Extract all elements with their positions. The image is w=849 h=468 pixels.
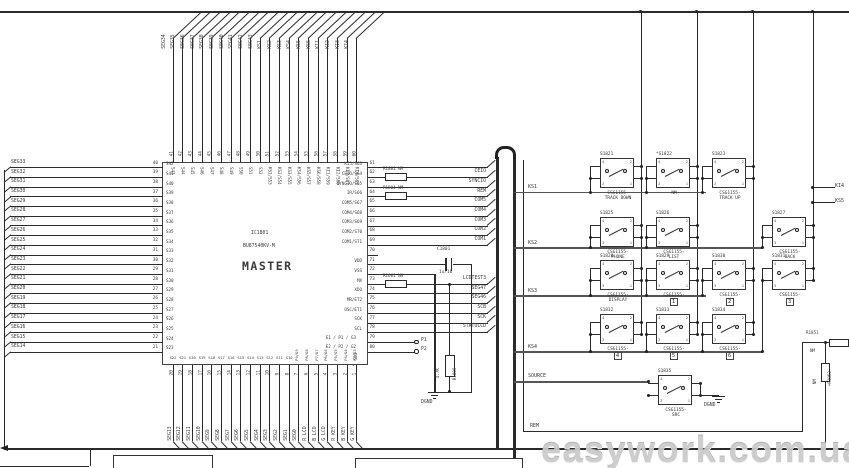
- pin-name: MR/ET2: [250, 298, 362, 302]
- pin-name: CEIO/S64: [250, 172, 362, 176]
- net-label: B LCD: [314, 426, 319, 440]
- pin-number: 49: [248, 151, 252, 156]
- junction-dot: [645, 191, 648, 194]
- resistor-value: NM: [813, 379, 817, 384]
- wire: [368, 293, 488, 294]
- resistor-body: [385, 192, 407, 200]
- switch-pin-number: 2: [630, 262, 632, 266]
- pin-number: 46: [218, 151, 222, 156]
- switch-arm-icon: [609, 324, 624, 332]
- switch-refdes: S1827: [772, 211, 785, 216]
- wire: [356, 38, 357, 163]
- pin-number: 3: [335, 373, 339, 376]
- pin-number: 72: [370, 268, 375, 272]
- net-label: SEG43: [250, 34, 255, 48]
- wire: [298, 38, 299, 163]
- switch-pin-number: 1: [686, 241, 688, 245]
- switch-pin-number: 1: [686, 338, 688, 342]
- net-label: SEG16: [11, 326, 25, 331]
- junction-dot: [640, 321, 643, 324]
- wire-diagonal: [487, 238, 496, 246]
- pin-number: 20: [170, 370, 174, 375]
- junction-dot: [701, 333, 704, 336]
- switch-pin-number: 4: [602, 262, 604, 266]
- pushbutton-switch: 4 2 3 1 S1831 CSG1155- 3: [772, 260, 806, 290]
- pin-name: COM2/S70: [250, 230, 362, 234]
- bus-entry: [3, 167, 11, 174]
- wire: [10, 313, 163, 314]
- pin-name: S27: [166, 308, 174, 312]
- wire: [10, 245, 163, 246]
- pin-number: 54: [296, 151, 300, 156]
- net-label: COM4: [406, 209, 486, 214]
- switch-contact-icon: [661, 271, 665, 275]
- ground-label: DGND: [421, 401, 433, 406]
- preset-key-icon: 4: [614, 352, 622, 360]
- pin-number: 28: [138, 278, 158, 282]
- net-label: SEG40: [221, 34, 226, 48]
- wire: [762, 268, 772, 269]
- switch-pin-number: 4: [602, 219, 604, 223]
- net-label: SEG46: [406, 296, 486, 301]
- pin-number: 4: [325, 373, 329, 376]
- wire: [182, 38, 183, 163]
- switch-pin-number: 4: [658, 219, 660, 223]
- watermark: easywork.com.ua: [541, 429, 849, 468]
- pin-alt-function: E2 / P2 / G2: [300, 345, 356, 349]
- pin-number: 66: [370, 210, 375, 214]
- wire: [813, 202, 835, 203]
- pin-name: S38: [166, 201, 174, 205]
- pin-name: S50: [238, 167, 242, 175]
- rail-net-label: SOURCE: [528, 374, 546, 379]
- wire: [368, 245, 488, 246]
- switch-pin-number: 2: [686, 219, 688, 223]
- switch-pin-number: 2: [630, 160, 632, 164]
- switch-refdes: S1834: [712, 308, 725, 313]
- wire: [802, 343, 803, 432]
- wire: [368, 352, 415, 353]
- pin-number: 13: [238, 370, 242, 375]
- pin-number: 51: [267, 151, 271, 156]
- pin-number: 78: [370, 326, 375, 330]
- switch-pin-number: 2: [686, 316, 688, 320]
- net-label: SEG32: [11, 171, 25, 176]
- wire-diagonal: [487, 325, 496, 333]
- switch-arm-icon: [781, 270, 796, 278]
- junction-dot: [640, 177, 643, 180]
- wire: [192, 38, 193, 163]
- rail-net-label: KS2: [528, 241, 537, 246]
- pin-number: 30: [138, 259, 158, 263]
- resistor-value: NM: [810, 349, 815, 353]
- switch-pin-number: 2: [686, 262, 688, 266]
- rail-wire: [514, 381, 648, 383]
- pin-number: 60: [354, 151, 358, 156]
- wire: [368, 177, 385, 178]
- wire: [240, 38, 241, 163]
- junction-dot: [645, 333, 648, 336]
- switch-pin-number: 2: [802, 219, 804, 223]
- pin-name: KI5/S63: [250, 162, 362, 166]
- net-label: KI3: [337, 40, 342, 49]
- pin-number: 38: [138, 181, 158, 185]
- pin-number: 67: [370, 220, 375, 224]
- wire: [368, 226, 488, 227]
- pin-number: 22: [138, 336, 158, 340]
- switch-pin-number: 3: [658, 284, 660, 288]
- switch-arm-icon: [721, 270, 736, 278]
- switch-contact-icon: [661, 325, 665, 329]
- preset-key-digit: 6: [728, 353, 731, 359]
- pin-name: S28: [166, 298, 174, 302]
- junction-dot: [696, 224, 699, 227]
- net-label: SEG10: [198, 426, 203, 440]
- junction-dot: [701, 191, 704, 194]
- pin-number: 56: [315, 151, 319, 156]
- rail-net-label: KS4: [528, 345, 537, 350]
- switch-arm-icon: [665, 324, 680, 332]
- switch-arm-icon: [609, 270, 624, 278]
- pin-name: S46: [200, 167, 204, 175]
- wire: [368, 196, 385, 197]
- wire: [289, 38, 290, 163]
- wire-diagonal: [487, 305, 496, 313]
- rail-net-label: REM: [530, 424, 539, 429]
- net-label: SEG36: [182, 34, 187, 48]
- pin-name: P6/G6: [325, 349, 329, 360]
- net-label: SEG22: [11, 268, 25, 273]
- pushbutton-switch: 4 2 3 1 *S1822 NM: [656, 158, 690, 188]
- switch-arm-icon: [609, 168, 624, 176]
- preset-key-icon: 5: [670, 352, 678, 360]
- net-label: SEG37: [192, 34, 197, 48]
- switch-pin-number: 1: [630, 182, 632, 186]
- switch-arm-icon: [665, 270, 680, 278]
- wire: [453, 264, 472, 265]
- switch-pin-number: 3: [602, 241, 604, 245]
- wire: [646, 322, 647, 351]
- pushbutton-switch: 4 2 3 1 S1835 CSG1155- SRC: [658, 375, 692, 405]
- net-label: SEG19: [11, 297, 25, 302]
- wire: [646, 268, 656, 269]
- junction-dot: [811, 186, 814, 189]
- switch-refdes: S1831: [772, 254, 785, 259]
- switch-pin-number: 4: [774, 262, 776, 266]
- pin-number: 44: [199, 151, 203, 156]
- switch-arm-icon: [609, 227, 624, 235]
- junction-dot: [761, 279, 764, 282]
- wire: [700, 383, 701, 395]
- wire-diagonal: [487, 286, 496, 294]
- switch-refdes: S1835: [658, 369, 671, 374]
- pin-number: 39: [138, 171, 158, 175]
- junction-dot: [640, 267, 643, 270]
- wire: [10, 255, 163, 256]
- switch-contact-icon: [717, 169, 721, 173]
- net-label: KS6: [308, 40, 313, 49]
- resistor-label: R1801 NM: [383, 167, 403, 171]
- net-label: SEG2: [275, 429, 280, 441]
- switch-contact-icon: [605, 271, 609, 275]
- pin-name: S33: [166, 249, 174, 253]
- net-label: SEG13: [169, 426, 174, 440]
- pin-name: S35: [166, 230, 174, 234]
- junction-dot: [640, 333, 643, 336]
- pin-name: SCL: [250, 327, 362, 331]
- rail-wire: [514, 247, 762, 249]
- pin-number: 79: [370, 336, 375, 340]
- resistor-label: R1601 NM: [383, 274, 403, 278]
- wire: [368, 313, 488, 314]
- pin-number: 57: [325, 151, 329, 156]
- switch-arm-icon: [665, 168, 680, 176]
- pin-number: 65: [370, 200, 375, 204]
- switch-pin-number: 4: [658, 262, 660, 266]
- net-label: SEG34: [163, 34, 168, 48]
- switch-pin-number: 4: [658, 316, 660, 320]
- switch-refdes: S1833: [656, 308, 669, 313]
- switch-function: DISPLAY: [591, 298, 645, 303]
- wire: [0, 466, 89, 467]
- junction-dot: [696, 267, 699, 270]
- pin-number: 69: [370, 239, 375, 243]
- pushbutton-switch: 4 2 3 1 S1832 CSG1155- 4: [600, 314, 634, 344]
- resistor-body: [385, 173, 407, 181]
- pin-name: S40: [166, 182, 174, 186]
- wire-diagonal: [487, 179, 496, 187]
- wire: [269, 38, 270, 163]
- switch-function: TRACK DOWN: [591, 196, 645, 201]
- switch-pin-number: 1: [688, 399, 690, 403]
- junction-dot: [645, 236, 648, 239]
- pin-number: 2: [344, 373, 348, 376]
- switch-pin-number: 1: [802, 241, 804, 245]
- junction-dot: [645, 279, 648, 282]
- wire-diagonal: [487, 160, 496, 168]
- preset-key-digit: 1: [672, 299, 675, 305]
- net-label: SEG8: [217, 429, 222, 441]
- junction-dot: [696, 279, 699, 282]
- net-label: R KEY: [333, 426, 338, 440]
- junction-dot: [696, 165, 699, 168]
- wire: [10, 284, 163, 285]
- switch-pin-number: 3: [774, 241, 776, 245]
- switch-pin-number: 1: [630, 284, 632, 288]
- wire: [0, 11, 849, 13]
- net-label: SEG18: [11, 306, 25, 311]
- wire: [211, 38, 212, 163]
- junction-dot: [696, 177, 699, 180]
- junction-dot: [589, 191, 592, 194]
- resistor-refdes: R1851: [806, 331, 819, 335]
- net-label: SEG35: [172, 34, 177, 48]
- net-label: B KEY: [343, 426, 348, 440]
- switch-pin-number: 1: [742, 284, 744, 288]
- wire: [646, 225, 656, 226]
- bus-arrow-icon: [0, 445, 8, 451]
- pin-name: SCK: [250, 317, 362, 321]
- pin-name: IR/S66: [250, 191, 362, 195]
- switch-pin-number: 3: [774, 284, 776, 288]
- pin-number: 14: [228, 370, 232, 375]
- pin-number: 76: [370, 307, 375, 311]
- pin-number: 48: [238, 151, 242, 156]
- wire: [700, 395, 719, 396]
- switch-pin-number: 2: [742, 262, 744, 266]
- switch-pin-number: 3: [658, 338, 660, 342]
- junction-dot: [645, 177, 648, 180]
- switch-refdes: S1821: [600, 152, 613, 157]
- pin-name: COM5/S67: [250, 201, 362, 205]
- pin-number: 77: [370, 317, 375, 321]
- test-point-label: P1: [421, 339, 427, 344]
- pin-number: 33: [138, 229, 158, 233]
- resistor-body: [829, 339, 849, 347]
- pin-name: XDO: [250, 288, 362, 292]
- pin-number: 71: [370, 259, 375, 263]
- switch-pin-number: 1: [686, 182, 688, 186]
- pin-number: 5: [315, 373, 319, 376]
- wire: [646, 322, 656, 323]
- net-label: KS3: [279, 40, 284, 49]
- pin-number: 55: [306, 151, 310, 156]
- wire: [590, 225, 600, 226]
- wire: [702, 322, 703, 351]
- net-label: SEG1: [285, 429, 290, 441]
- switch-pin-number: 3: [602, 338, 604, 342]
- pushbutton-switch: 4 2 3 1 S1826 CSG1155- LIST: [656, 217, 690, 247]
- rail-net-label: KS1: [528, 185, 537, 190]
- net-label: SCB: [406, 306, 486, 311]
- switch-contact-icon: [717, 325, 721, 329]
- wire: [10, 177, 163, 178]
- edge-net-label: KI4: [835, 184, 844, 189]
- net-label: SEG5: [246, 429, 251, 441]
- net-label: SEG31: [11, 180, 25, 185]
- net-label: SEG28: [11, 209, 25, 214]
- resistor-refdes: R1809: [452, 368, 456, 381]
- pushbutton-switch: 4 2 3 1 S1829 CSG1155- 1: [656, 260, 690, 290]
- switch-pin-number: 3: [658, 182, 660, 186]
- wire: [762, 225, 772, 226]
- pin-number: 32: [138, 239, 158, 243]
- preset-key-digit: 2: [728, 299, 731, 305]
- wire-diagonal: [487, 189, 496, 197]
- wire: [813, 12, 814, 281]
- pin-name: S30: [166, 279, 174, 283]
- switch-pin-number: 2: [688, 377, 690, 381]
- wire: [813, 187, 835, 188]
- net-label: KS2: [269, 40, 274, 49]
- switch-refdes: S1823: [712, 152, 725, 157]
- wire: [202, 38, 203, 163]
- switch-contact-icon: [777, 271, 781, 275]
- wire: [10, 167, 163, 168]
- wire-diagonal: [487, 218, 496, 226]
- pin-name: S48: [219, 167, 223, 175]
- wire: [646, 166, 656, 167]
- junction-dot: [589, 177, 592, 180]
- wire: [10, 264, 163, 265]
- ground-label: DGND: [704, 404, 716, 409]
- junction-dot: [761, 236, 764, 239]
- switch-pin-number: 4: [602, 160, 604, 164]
- pin-name: S47: [209, 167, 213, 175]
- pin-name: S31: [166, 269, 174, 273]
- wire: [753, 12, 754, 334]
- wire: [10, 196, 163, 197]
- junction-dot: [589, 236, 592, 239]
- pin-number: 17: [199, 370, 203, 375]
- pin-name: VDD: [250, 259, 362, 263]
- partial-block-outline: [355, 458, 523, 468]
- wire: [702, 268, 712, 269]
- pin-name: COM1/S71: [250, 240, 362, 244]
- schematic-sheet: R1801 NMR1804 NMR1601 NM IC1801 BU87540K…: [0, 0, 849, 468]
- net-label: SEG21: [11, 277, 25, 282]
- switch-pin-number: 2: [742, 160, 744, 164]
- junction-dot: [589, 279, 592, 282]
- switch-pin-number: 4: [714, 316, 716, 320]
- preset-key-digit: 3: [788, 299, 791, 305]
- pin-name-sdi: SDI: [353, 353, 357, 361]
- wire: [10, 293, 163, 294]
- pin-number: 42: [180, 151, 184, 156]
- junction-dot: [812, 267, 815, 270]
- switch-pin-number: 4: [714, 160, 716, 164]
- switch-refdes: S1829: [656, 254, 669, 259]
- junction-dot: [812, 224, 815, 227]
- pin-number: 11: [257, 370, 261, 375]
- switch-pin-number: 1: [742, 338, 744, 342]
- preset-key-icon: 2: [726, 298, 734, 306]
- wire: [717, 402, 720, 403]
- pin-number: 40: [138, 162, 158, 166]
- switch-contact-icon: [605, 325, 609, 329]
- junction-dot: [640, 224, 643, 227]
- net-label: SEG11: [188, 426, 193, 440]
- pin-number: 10: [267, 370, 271, 375]
- net-label: SEG42: [240, 34, 245, 48]
- pin-number: 12: [248, 370, 252, 375]
- wire: [10, 206, 163, 207]
- net-label: KS5: [298, 40, 303, 49]
- pin-number: 59: [344, 151, 348, 156]
- pin-number: 61: [370, 162, 375, 166]
- pin-name: P4/G4: [344, 349, 348, 360]
- pin-name: P7/G7: [315, 349, 319, 360]
- net-label: COM5: [406, 199, 486, 204]
- switch-pin-number: 3: [602, 284, 604, 288]
- preset-key-digit: 5: [672, 353, 675, 359]
- pin-number: 73: [370, 278, 375, 282]
- resistor-body: [385, 280, 407, 288]
- test-point: [414, 349, 419, 354]
- pin-name: OSC/ET1: [250, 308, 362, 312]
- switch-refdes: *S1822: [656, 152, 672, 157]
- wire: [260, 38, 261, 163]
- switch-pin-number: 4: [660, 377, 662, 381]
- net-label: SEG20: [11, 287, 25, 292]
- switch-pin-number: 1: [742, 182, 744, 186]
- switch-pin-number: 3: [714, 182, 716, 186]
- pushbutton-switch: 4 2 3 1 S1830 CSG1155- 2: [712, 260, 746, 290]
- net-label: SEG4: [256, 429, 261, 441]
- junction-dot: [761, 350, 764, 353]
- pushbutton-switch: 4 2 3 1 S1833 CSG1155- 5: [656, 314, 690, 344]
- wire: [825, 343, 826, 363]
